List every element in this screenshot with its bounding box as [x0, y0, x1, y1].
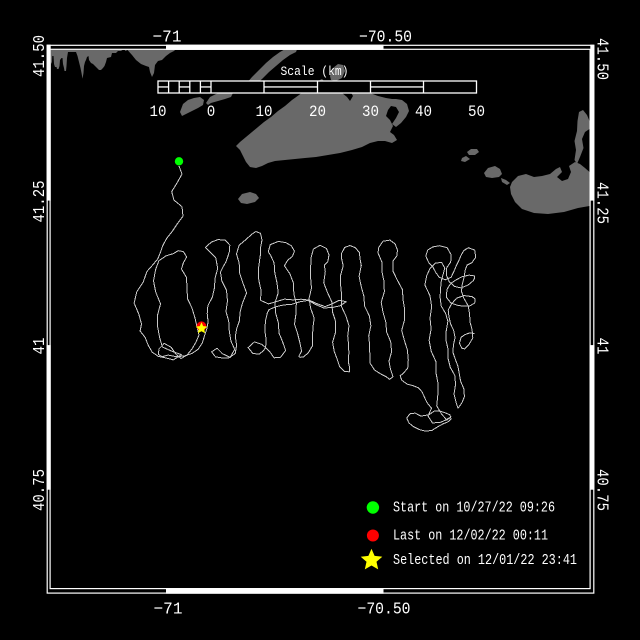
svg-text:41.50: 41.50 [593, 38, 612, 80]
svg-text:41: 41 [30, 337, 49, 354]
svg-text:20: 20 [309, 103, 326, 121]
svg-text:50: 50 [468, 103, 485, 121]
svg-text:Last on 12/02/22 00:11: Last on 12/02/22 00:11 [393, 529, 548, 545]
svg-text:41: 41 [593, 338, 612, 355]
svg-text:Scale (km): Scale (km) [281, 64, 349, 79]
svg-text:40.75: 40.75 [593, 469, 612, 511]
svg-text:10: 10 [150, 103, 167, 121]
svg-text:−70.50: −70.50 [358, 600, 411, 619]
svg-text:−71: −71 [153, 27, 182, 46]
svg-text:41.25: 41.25 [593, 182, 612, 224]
svg-text:−71: −71 [154, 600, 183, 619]
svg-text:40: 40 [415, 103, 432, 121]
svg-text:41.25: 41.25 [30, 181, 49, 223]
svg-text:0: 0 [207, 103, 216, 121]
svg-text:Selected on 12/01/22 23:41: Selected on 12/01/22 23:41 [393, 553, 577, 569]
svg-text:10: 10 [256, 103, 273, 121]
svg-text:40.75: 40.75 [30, 469, 49, 511]
svg-text:Start on 10/27/22 09:26: Start on 10/27/22 09:26 [393, 501, 555, 517]
svg-text:30: 30 [362, 103, 379, 121]
svg-text:41.50: 41.50 [30, 35, 49, 77]
svg-text:−70.50: −70.50 [359, 27, 412, 46]
